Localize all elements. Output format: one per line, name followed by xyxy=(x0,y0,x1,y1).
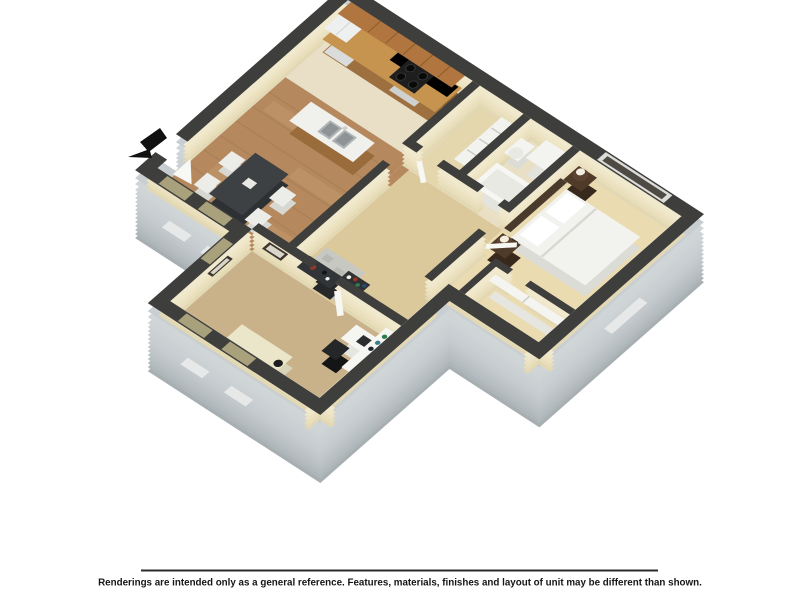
entry-arrow-icon xyxy=(128,128,167,158)
floor-plan-rendering: Renderings are intended only as a genera… xyxy=(0,0,800,600)
footer-divider xyxy=(141,570,658,572)
floor-plan-page: { "page": { "background": "#ffffff" }, "… xyxy=(0,0,800,600)
footer: Renderings are intended only as a genera… xyxy=(98,570,702,589)
disclaimer-text: Renderings are intended only as a genera… xyxy=(98,578,702,589)
